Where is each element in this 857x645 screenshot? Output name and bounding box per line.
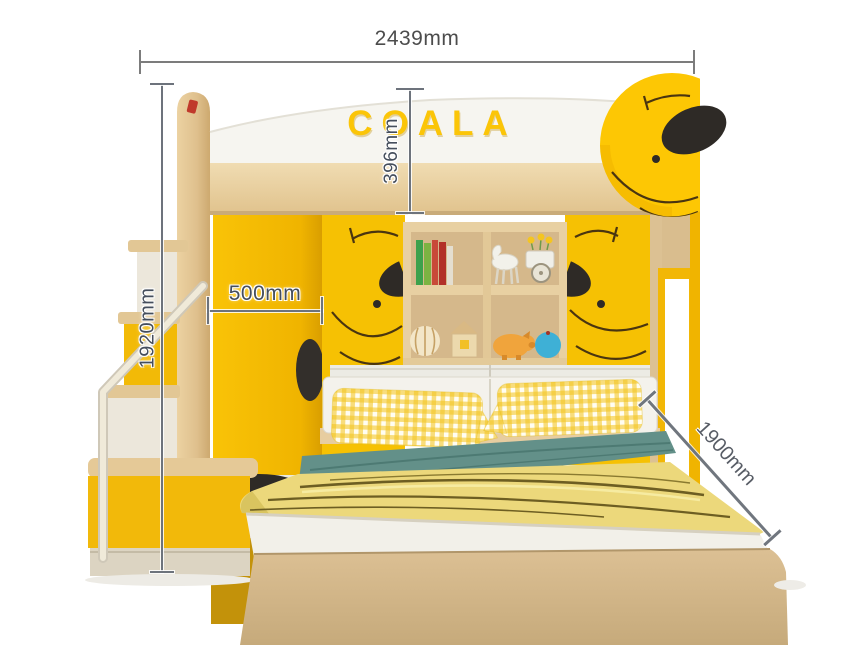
floor-shadow (774, 580, 806, 590)
product-image: COALA 2439mm 1920mm 396mm 500mm 1900mm (0, 0, 857, 645)
books (416, 240, 453, 285)
pillow-left (331, 388, 499, 449)
stair-drawer-box (88, 458, 258, 576)
dimension-tick (139, 50, 141, 74)
dimension-line (207, 310, 323, 312)
dimension-label: 500mm (229, 282, 302, 306)
dimension-tick (396, 88, 424, 90)
pillow-right (482, 379, 643, 438)
dimension-tick (150, 571, 174, 573)
dimension-tick (150, 83, 174, 85)
dimension-tick (207, 297, 209, 324)
bunk-bed-illustration (0, 0, 857, 645)
dimension-tick (396, 212, 424, 214)
koala-eye-decal (652, 155, 660, 163)
koala-eye-decal (373, 300, 381, 308)
dimension-tick (321, 297, 323, 324)
dimension-label: 2439mm (375, 27, 460, 51)
bed-base (240, 549, 806, 645)
dimension-tick (693, 50, 695, 74)
floor-shadow (85, 574, 255, 586)
dimension-label: 396mm (381, 118, 403, 184)
wardrobe-door (213, 215, 324, 475)
dimension-line (161, 83, 163, 573)
bookshelf (403, 222, 567, 368)
dimension-line (139, 61, 695, 63)
dimension-label: 1920mm (137, 288, 160, 369)
dimension-line (409, 88, 411, 214)
lower-bed (240, 377, 806, 645)
koala-eye-decal (597, 300, 605, 308)
brand-logo: COALA (322, 104, 542, 144)
toy-striped-ball (410, 326, 440, 356)
door-handle (296, 339, 324, 401)
